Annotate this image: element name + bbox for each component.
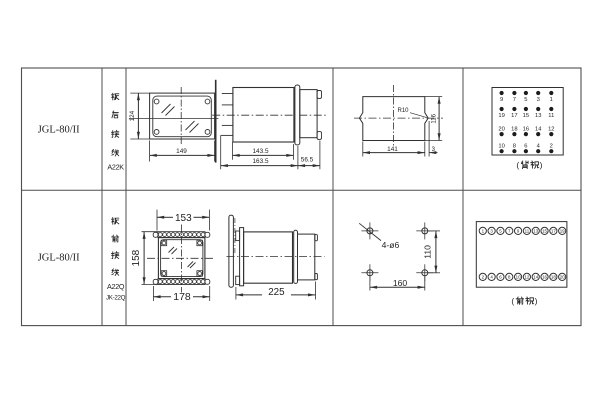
svg-text:225: 225 bbox=[268, 287, 285, 298]
svg-text:116: 116 bbox=[431, 113, 437, 123]
svg-text:6: 6 bbox=[524, 143, 527, 149]
svg-text:19: 19 bbox=[498, 113, 504, 119]
svg-text:5: 5 bbox=[524, 97, 527, 103]
svg-text:13: 13 bbox=[533, 229, 538, 234]
svg-text:11: 11 bbox=[548, 113, 554, 119]
svg-text:16: 16 bbox=[523, 126, 529, 132]
svg-text:10: 10 bbox=[498, 143, 504, 149]
svg-text:4-ø6: 4-ø6 bbox=[382, 240, 400, 250]
svg-text:56.5: 56.5 bbox=[301, 156, 314, 163]
svg-text:143.5: 143.5 bbox=[253, 148, 269, 155]
svg-text:(: ( bbox=[511, 296, 514, 306]
svg-text:(: ( bbox=[516, 160, 519, 170]
svg-text:19: 19 bbox=[560, 229, 565, 234]
svg-text:8: 8 bbox=[513, 143, 516, 149]
svg-text:2: 2 bbox=[550, 143, 553, 149]
svg-text:163.5: 163.5 bbox=[253, 158, 269, 165]
svg-text:160: 160 bbox=[393, 278, 408, 288]
svg-text:1: 1 bbox=[550, 97, 553, 103]
svg-text:): ) bbox=[535, 296, 538, 306]
svg-text:13: 13 bbox=[535, 113, 541, 119]
svg-text:9: 9 bbox=[500, 97, 503, 103]
svg-text:JK-22Q: JK-22Q bbox=[106, 295, 126, 302]
svg-text:20: 20 bbox=[498, 126, 504, 132]
svg-text:JGL-80/II: JGL-80/II bbox=[38, 125, 80, 136]
svg-text:R10: R10 bbox=[397, 108, 409, 114]
svg-text:12: 12 bbox=[548, 126, 554, 132]
svg-text:18: 18 bbox=[511, 126, 517, 132]
svg-text:11: 11 bbox=[525, 229, 530, 234]
svg-text:): ) bbox=[540, 160, 543, 170]
svg-text:18: 18 bbox=[551, 275, 556, 280]
svg-text:JGL-80/II: JGL-80/II bbox=[38, 253, 80, 264]
svg-text:153: 153 bbox=[175, 213, 192, 224]
svg-text:15: 15 bbox=[542, 229, 547, 234]
svg-text:12: 12 bbox=[524, 275, 529, 280]
svg-text:110: 110 bbox=[423, 245, 433, 259]
svg-text:17: 17 bbox=[511, 113, 517, 119]
svg-text:124: 124 bbox=[129, 110, 136, 121]
svg-text:14: 14 bbox=[535, 126, 542, 132]
svg-text:7: 7 bbox=[513, 97, 516, 103]
svg-text:14: 14 bbox=[533, 275, 538, 280]
svg-text:10: 10 bbox=[516, 275, 521, 280]
svg-text:20: 20 bbox=[560, 275, 565, 280]
svg-text:3: 3 bbox=[537, 97, 540, 103]
svg-text:178: 178 bbox=[173, 291, 191, 303]
svg-text:149: 149 bbox=[176, 148, 187, 155]
svg-text:A22K: A22K bbox=[107, 163, 124, 172]
svg-text:16: 16 bbox=[542, 275, 547, 280]
svg-text:141: 141 bbox=[387, 146, 398, 153]
svg-text:15: 15 bbox=[523, 113, 529, 119]
svg-text:17: 17 bbox=[551, 229, 556, 234]
svg-text:158: 158 bbox=[131, 249, 142, 266]
svg-text:A22Q: A22Q bbox=[107, 282, 125, 291]
